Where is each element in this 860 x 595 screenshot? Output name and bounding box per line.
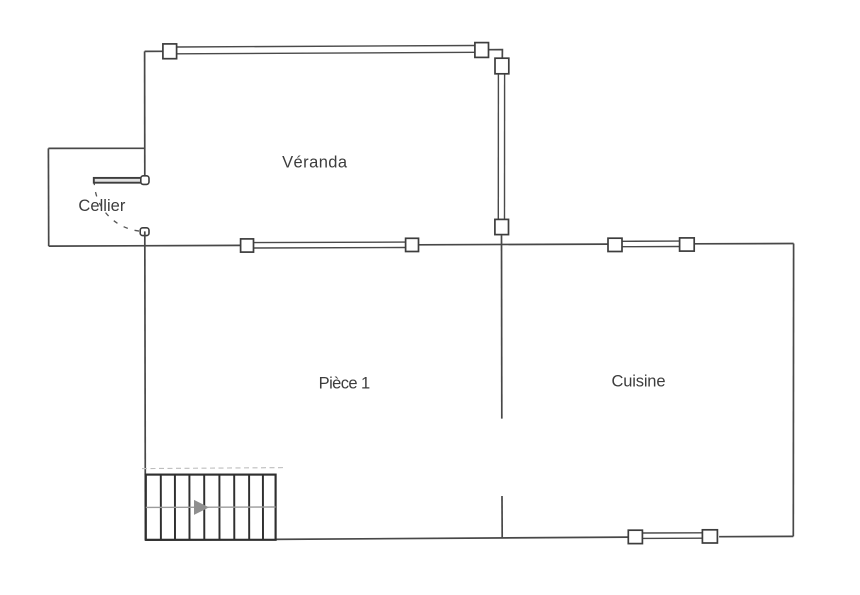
svg-text:Cuisine: Cuisine <box>612 373 666 391</box>
svg-text:Cellier: Cellier <box>78 197 125 215</box>
svg-text:Pièce 1: Pièce 1 <box>319 375 371 393</box>
svg-text:Véranda: Véranda <box>282 153 348 171</box>
